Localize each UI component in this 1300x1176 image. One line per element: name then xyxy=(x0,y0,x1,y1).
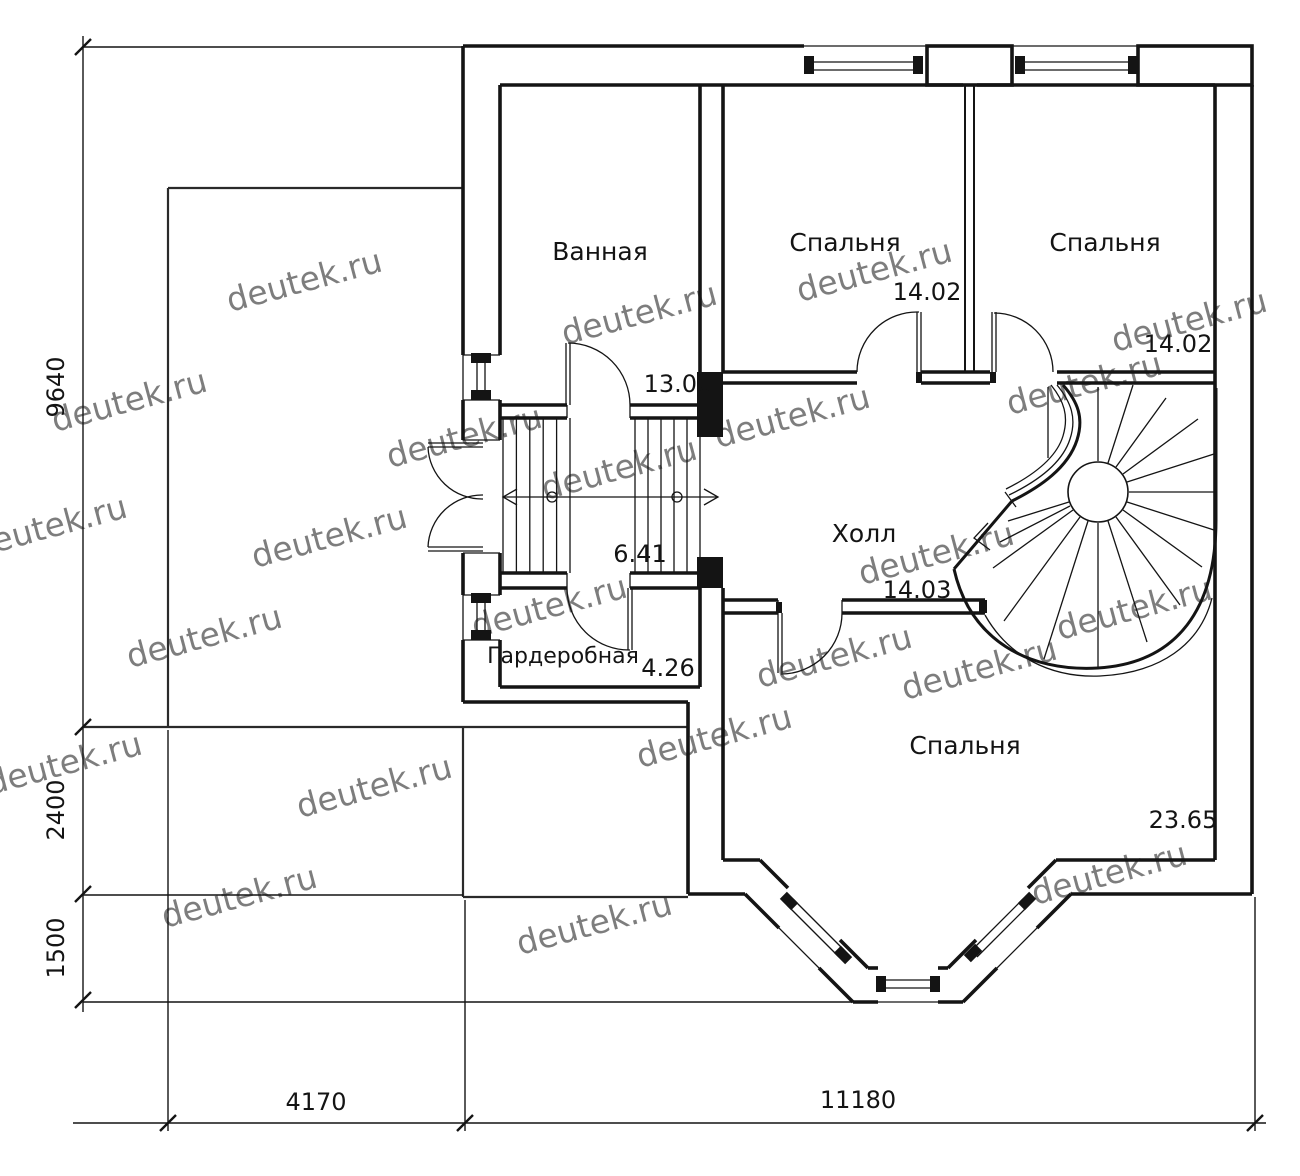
window-top-left xyxy=(804,56,923,74)
watermark-text: deutek.ru xyxy=(1027,834,1191,913)
watermark-text: deutek.ru xyxy=(467,567,631,646)
room-label-bedroom-top-mid: Спальня xyxy=(789,228,900,257)
watermark-text: deutek.ru xyxy=(557,274,721,353)
watermark-text: deutek.ru xyxy=(247,497,411,576)
room-area-bedroom-top-mid: 14.02 xyxy=(893,278,962,306)
window-left-upper xyxy=(471,353,491,400)
window-bay-left xyxy=(780,892,852,964)
room-label-bathroom: Ванная xyxy=(552,237,648,266)
floor-plan-page: deutek.ru deutek.ru deutek.ru deutek.ru … xyxy=(0,0,1300,1176)
watermark-text: deutek.ru xyxy=(710,377,874,456)
wall-pillar xyxy=(927,46,1012,85)
dimension-layer: 9640 2400 1500 4170 11180 xyxy=(42,36,1266,1131)
dim-left-9640: 9640 xyxy=(42,356,70,417)
room-label-bedroom-top-right: Спальня xyxy=(1049,228,1160,257)
wall-block xyxy=(979,600,987,613)
watermark-text: deutek.ru xyxy=(897,629,1061,708)
spiral-eye xyxy=(1068,462,1128,522)
watermark-text: deutek.ru xyxy=(157,857,321,936)
watermark-text: deutek.ru xyxy=(222,241,386,320)
window-bay-right xyxy=(964,892,1036,962)
watermark-layer: deutek.ru deutek.ru deutek.ru deutek.ru … xyxy=(0,231,1271,963)
window-top-right xyxy=(1015,56,1138,74)
window-bay-center xyxy=(876,976,940,992)
watermark-text: deutek.ru xyxy=(47,361,211,440)
room-label-bedroom-bottom: Спальня xyxy=(909,731,1020,760)
watermark-text: deutek.ru xyxy=(537,429,701,508)
watermark-text: deutek.ru xyxy=(0,724,146,803)
room-area-hall: 14.03 xyxy=(883,576,952,604)
door-bathroom xyxy=(566,343,630,405)
watermark-text: deutek.ru xyxy=(632,697,796,776)
door-bedroom-top-right xyxy=(990,312,1053,383)
watermark-text: deutek.ru xyxy=(0,487,131,566)
room-label-wardrobe: Гардеробная xyxy=(487,644,639,669)
dim-left-1500: 1500 xyxy=(42,917,70,978)
watermark-text: deutek.ru xyxy=(752,617,916,696)
room-area-bedroom-top-right: 14.02 xyxy=(1144,330,1213,358)
room-label-hall: Холл xyxy=(832,519,896,548)
watermark-text: deutek.ru xyxy=(122,597,286,676)
dim-bottom-11180: 11180 xyxy=(820,1086,896,1114)
door-bedroom-top-mid xyxy=(857,312,922,383)
window-layer xyxy=(471,56,1138,992)
dim-bottom-4170: 4170 xyxy=(285,1088,346,1116)
room-area-bathroom: 13.00 xyxy=(644,370,713,398)
floor-plan-drawing: deutek.ru deutek.ru deutek.ru deutek.ru … xyxy=(0,0,1300,1176)
room-area-wardrobe: 4.26 xyxy=(641,654,694,682)
watermark-text: deutek.ru xyxy=(292,747,456,826)
wall-corner-top-right xyxy=(1138,46,1252,85)
dim-left-2400: 2400 xyxy=(42,779,70,840)
room-area-staircase: 6.41 xyxy=(613,540,666,568)
watermark-text: deutek.ru xyxy=(1052,569,1216,648)
wall-block xyxy=(697,557,723,588)
watermark-text: deutek.ru xyxy=(512,884,676,963)
room-area-bedroom-bottom: 23.65 xyxy=(1149,806,1218,834)
